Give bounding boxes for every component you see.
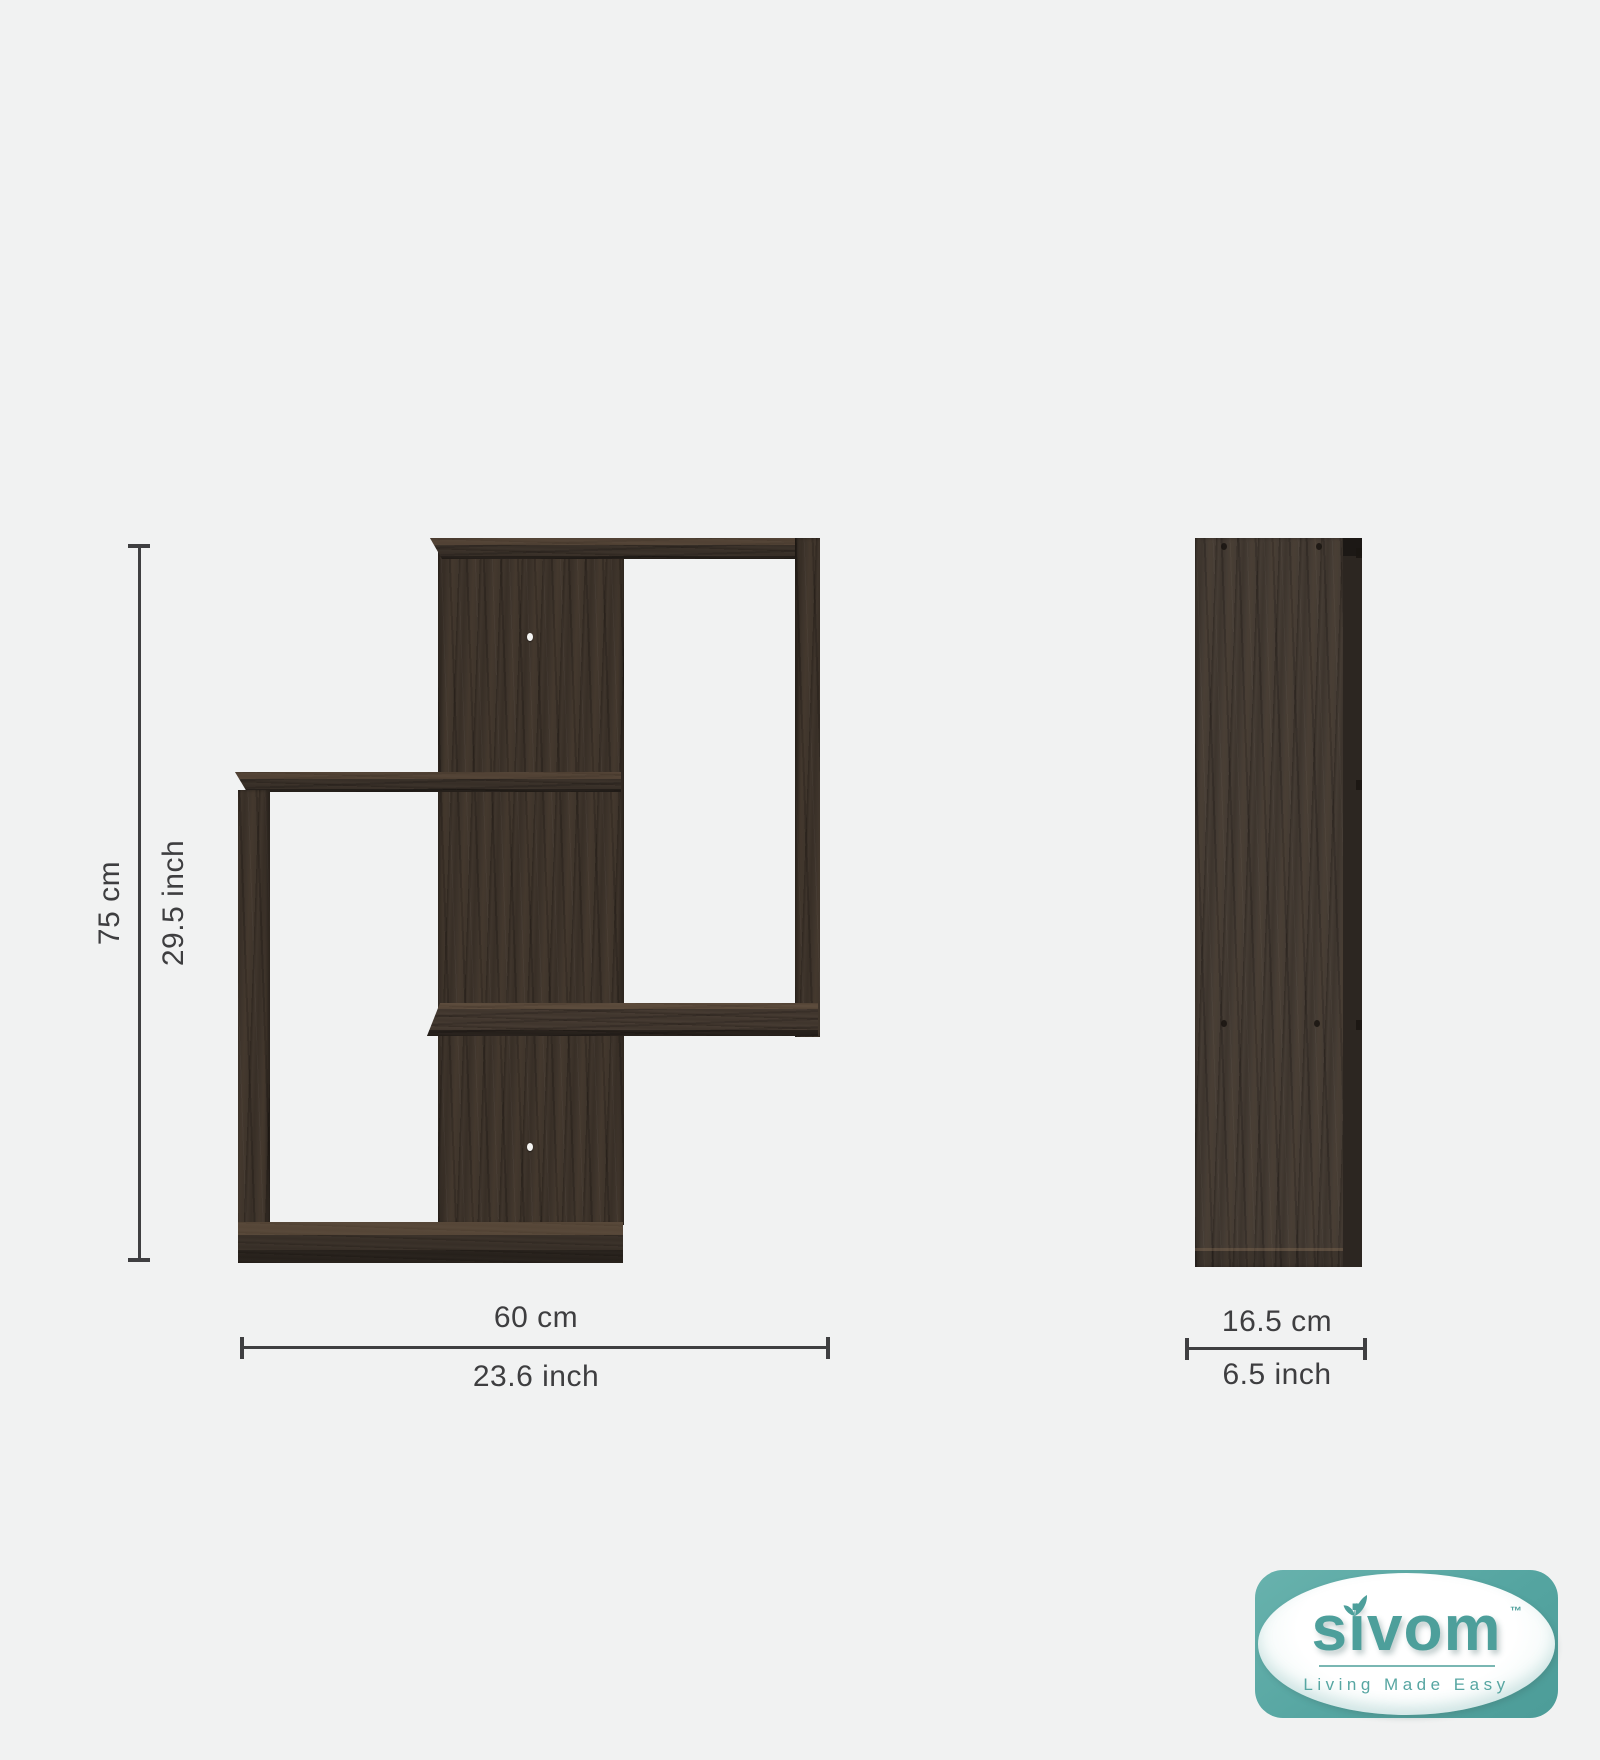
front-bottom-board bbox=[238, 1222, 623, 1263]
screw-hole bbox=[1221, 543, 1227, 550]
product-dimension-image: 75 cm 29.5 inch 60 cm 23.6 inch 16.5 cm … bbox=[0, 0, 1600, 1760]
width-dimension-cap-right bbox=[826, 1337, 830, 1359]
leaf-icon bbox=[1341, 1592, 1369, 1618]
side-bottom-edge-shade bbox=[1195, 1251, 1343, 1267]
front-center-panel bbox=[438, 552, 624, 1225]
width-dimension-line bbox=[242, 1346, 828, 1349]
front-right-side-board bbox=[795, 538, 820, 1037]
front-top-shelf-board bbox=[430, 538, 820, 559]
height-dimension-line bbox=[138, 546, 141, 1260]
trademark-symbol: ™ bbox=[1510, 1604, 1522, 1618]
height-inch-label: 29.5 inch bbox=[157, 840, 191, 966]
width-dimension-cap-left bbox=[240, 1337, 244, 1359]
front-left-shelf-board bbox=[235, 772, 621, 792]
side-panel-face bbox=[1195, 538, 1343, 1267]
screw-hole bbox=[1316, 543, 1322, 550]
depth-dimension-cap-right bbox=[1363, 1338, 1367, 1360]
screw-hole bbox=[1314, 1020, 1320, 1027]
side-panel-edge bbox=[1343, 538, 1362, 1267]
mount-hole-bottom bbox=[527, 1143, 533, 1151]
logo-divider bbox=[1319, 1665, 1495, 1667]
depth-inch-label: 6.5 inch bbox=[1222, 1358, 1331, 1392]
shelf-pin-notch bbox=[1356, 548, 1362, 558]
front-middle-shelf-board bbox=[427, 1003, 818, 1036]
mount-hole-top bbox=[527, 633, 533, 641]
depth-dimension-line bbox=[1187, 1347, 1367, 1350]
width-cm-label: 60 cm bbox=[494, 1301, 578, 1335]
depth-dimension-cap-left bbox=[1185, 1338, 1189, 1360]
height-cm-label: 75 cm bbox=[93, 861, 127, 945]
screw-hole bbox=[1221, 1020, 1227, 1027]
brand-tagline: Living Made Easy bbox=[1255, 1675, 1558, 1695]
front-left-side-board bbox=[238, 790, 270, 1263]
width-inch-label: 23.6 inch bbox=[473, 1360, 599, 1394]
height-dimension-cap-top bbox=[128, 544, 150, 548]
shelf-pin-notch bbox=[1356, 1020, 1362, 1030]
shelf-pin-notch bbox=[1356, 780, 1362, 790]
brand-logo: sivom ™ Living Made Easy bbox=[1255, 1570, 1558, 1718]
depth-cm-label: 16.5 cm bbox=[1222, 1305, 1332, 1339]
height-dimension-cap-bottom bbox=[128, 1258, 150, 1262]
